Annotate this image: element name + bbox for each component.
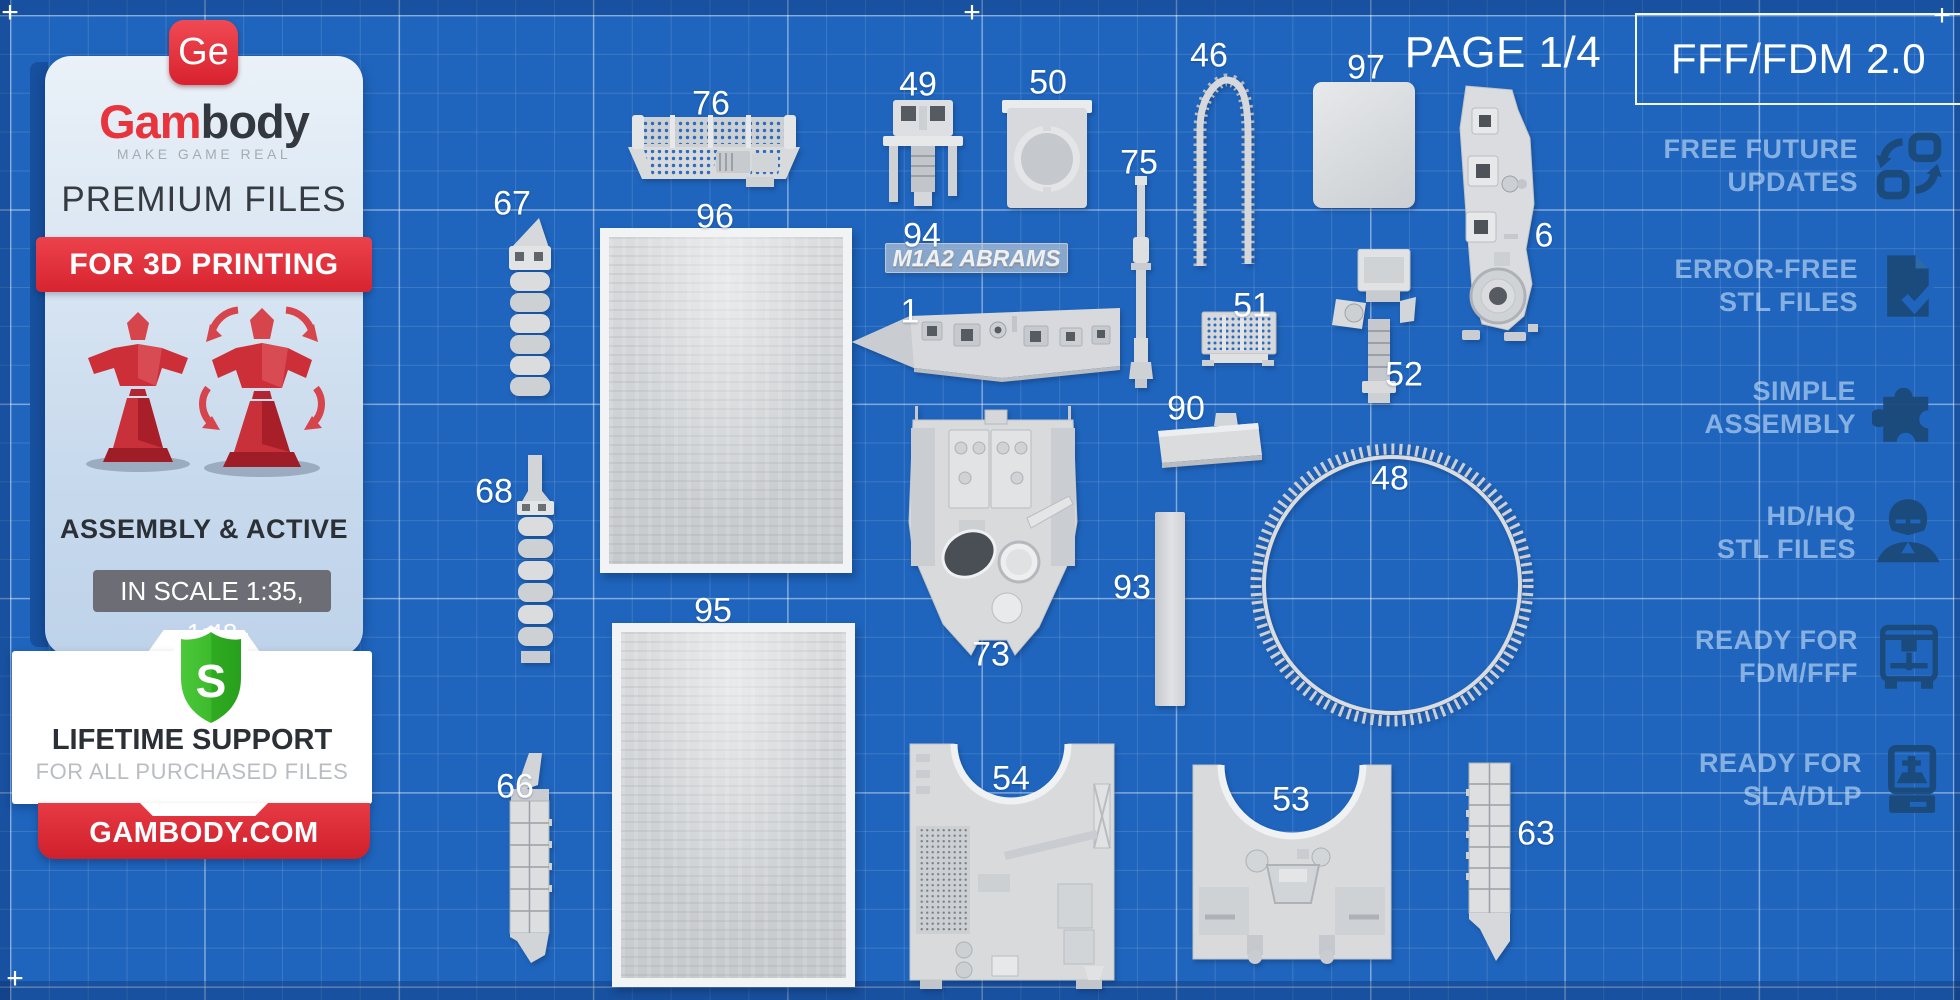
feature-line2: STL FILES (1717, 533, 1856, 566)
part-label-46: 46 (1190, 37, 1228, 76)
gambody-logo-icon: Ge (169, 20, 238, 85)
format-label: FFF/FDM 2.0 (1671, 35, 1926, 83)
shield-letter: S (196, 655, 227, 707)
part-label-90: 90 (1167, 390, 1205, 429)
feature-free-future-updates: FREE FUTUREUPDATES (1584, 124, 1944, 208)
feature-line1: HD/HQ (1717, 500, 1856, 533)
right-margin-band (1954, 0, 1960, 1000)
feature-line1: READY FOR (1695, 624, 1858, 657)
updates-icon (1874, 131, 1944, 201)
part-label-93: 93 (1113, 569, 1151, 608)
part-label-67: 67 (493, 185, 531, 224)
feature-line2: ASSEMBLY (1704, 408, 1856, 441)
part-6-hull-side (1454, 84, 1540, 349)
lifetime-support-label: LIFETIME SUPPORT (12, 724, 372, 757)
part-50-ring-plate (1002, 96, 1092, 210)
part-label-76: 76 (692, 85, 730, 124)
assembly-figures-illustration (70, 296, 340, 486)
part-label-48: 48 (1371, 460, 1409, 499)
feature-ready-fdm: READY FORFDM/FFF (1584, 615, 1944, 699)
part-label-1: 1 (901, 293, 920, 332)
part-68-skirt-track (512, 455, 558, 670)
part-label-94: 94 (903, 217, 941, 256)
fdm-printer-icon (1874, 622, 1944, 692)
left-margin-band (0, 0, 10, 1000)
part-label-51: 51 (1233, 287, 1271, 326)
feature-line1: FREE FUTURE (1664, 133, 1859, 166)
part-label-75: 75 (1120, 144, 1158, 183)
feature-line2: SLA/DLP (1699, 780, 1862, 813)
part-97-plate (1313, 82, 1415, 208)
crosshair-bottom-left: + (6, 964, 24, 994)
feature-error-free-stl: ERROR-FREESTL FILES (1584, 244, 1944, 328)
part-label-96: 96 (696, 198, 734, 237)
feature-line1: SIMPLE (1704, 375, 1856, 408)
for-3d-printing-ribbon: FOR 3D PRINTING (36, 237, 372, 292)
feature-line1: READY FOR (1699, 747, 1862, 780)
part-75-barrel (1128, 176, 1154, 391)
logo-text: Ge (178, 31, 229, 74)
part-label-73: 73 (972, 636, 1010, 675)
part-93-strip (1155, 512, 1185, 706)
part-label-49: 49 (899, 66, 937, 105)
premium-files-title: PREMIUM FILES (45, 180, 363, 220)
blueprint-page: + + + + PAGE 1/4 FFF/FDM 2.0 Ge Gambody … (0, 0, 1960, 1000)
part-63-track-strip (1466, 759, 1514, 963)
part-96-panel (600, 228, 852, 573)
page-number: PAGE 1/4 (1398, 28, 1608, 78)
format-box: FFF/FDM 2.0 (1635, 13, 1960, 105)
part-label-95: 95 (694, 592, 732, 631)
helmet-icon (1872, 497, 1944, 569)
assembly-active-label: ASSEMBLY & ACTIVE (45, 514, 363, 545)
feature-line2: FDM/FFF (1695, 657, 1858, 690)
brand-dark: body (201, 95, 309, 148)
scale-badge: IN SCALE 1:35, 1:48 (93, 570, 331, 612)
feature-line2: STL FILES (1674, 286, 1858, 319)
part-95-panel (612, 623, 855, 987)
part-label-63: 63 (1517, 815, 1555, 854)
part-label-68: 68 (475, 473, 513, 512)
feature-hdhq-stl: HD/HQSTL FILES (1584, 491, 1944, 575)
crosshair-top-left: + (1, 0, 19, 28)
part-label-52: 52 (1385, 356, 1423, 395)
shield-icon: S (170, 623, 252, 733)
part-46-track-chain (1186, 68, 1260, 268)
brand-red: Gam (99, 95, 201, 148)
feature-simple-assembly: SIMPLEASSEMBLY (1584, 366, 1944, 450)
feature-line2: UPDATES (1664, 166, 1859, 199)
feature-line1: ERROR-FREE (1674, 253, 1858, 286)
part-label-97: 97 (1347, 49, 1385, 88)
part-label-54: 54 (992, 760, 1030, 799)
part-label-66: 66 (496, 768, 534, 807)
feature-ready-sla: READY FORSLA/DLP (1584, 738, 1944, 822)
puzzle-icon (1872, 372, 1944, 444)
part-label-6: 6 (1535, 217, 1554, 256)
part-1-hull-glacis (852, 308, 1122, 388)
part-label-53: 53 (1272, 781, 1310, 820)
part-49-bracket (881, 98, 965, 208)
brand-tagline: MAKE GAME REAL (45, 146, 363, 162)
brand-name: Gambody (45, 94, 363, 149)
website-banner-tab (140, 803, 268, 816)
sla-printer-icon (1878, 745, 1944, 815)
part-67-track (505, 216, 555, 404)
purchased-files-label: FOR ALL PURCHASED FILES (12, 759, 372, 785)
part-76-rack (628, 113, 800, 191)
part-label-50: 50 (1029, 64, 1067, 103)
crosshair-top-center: + (963, 0, 981, 28)
document-check-icon (1874, 251, 1944, 321)
